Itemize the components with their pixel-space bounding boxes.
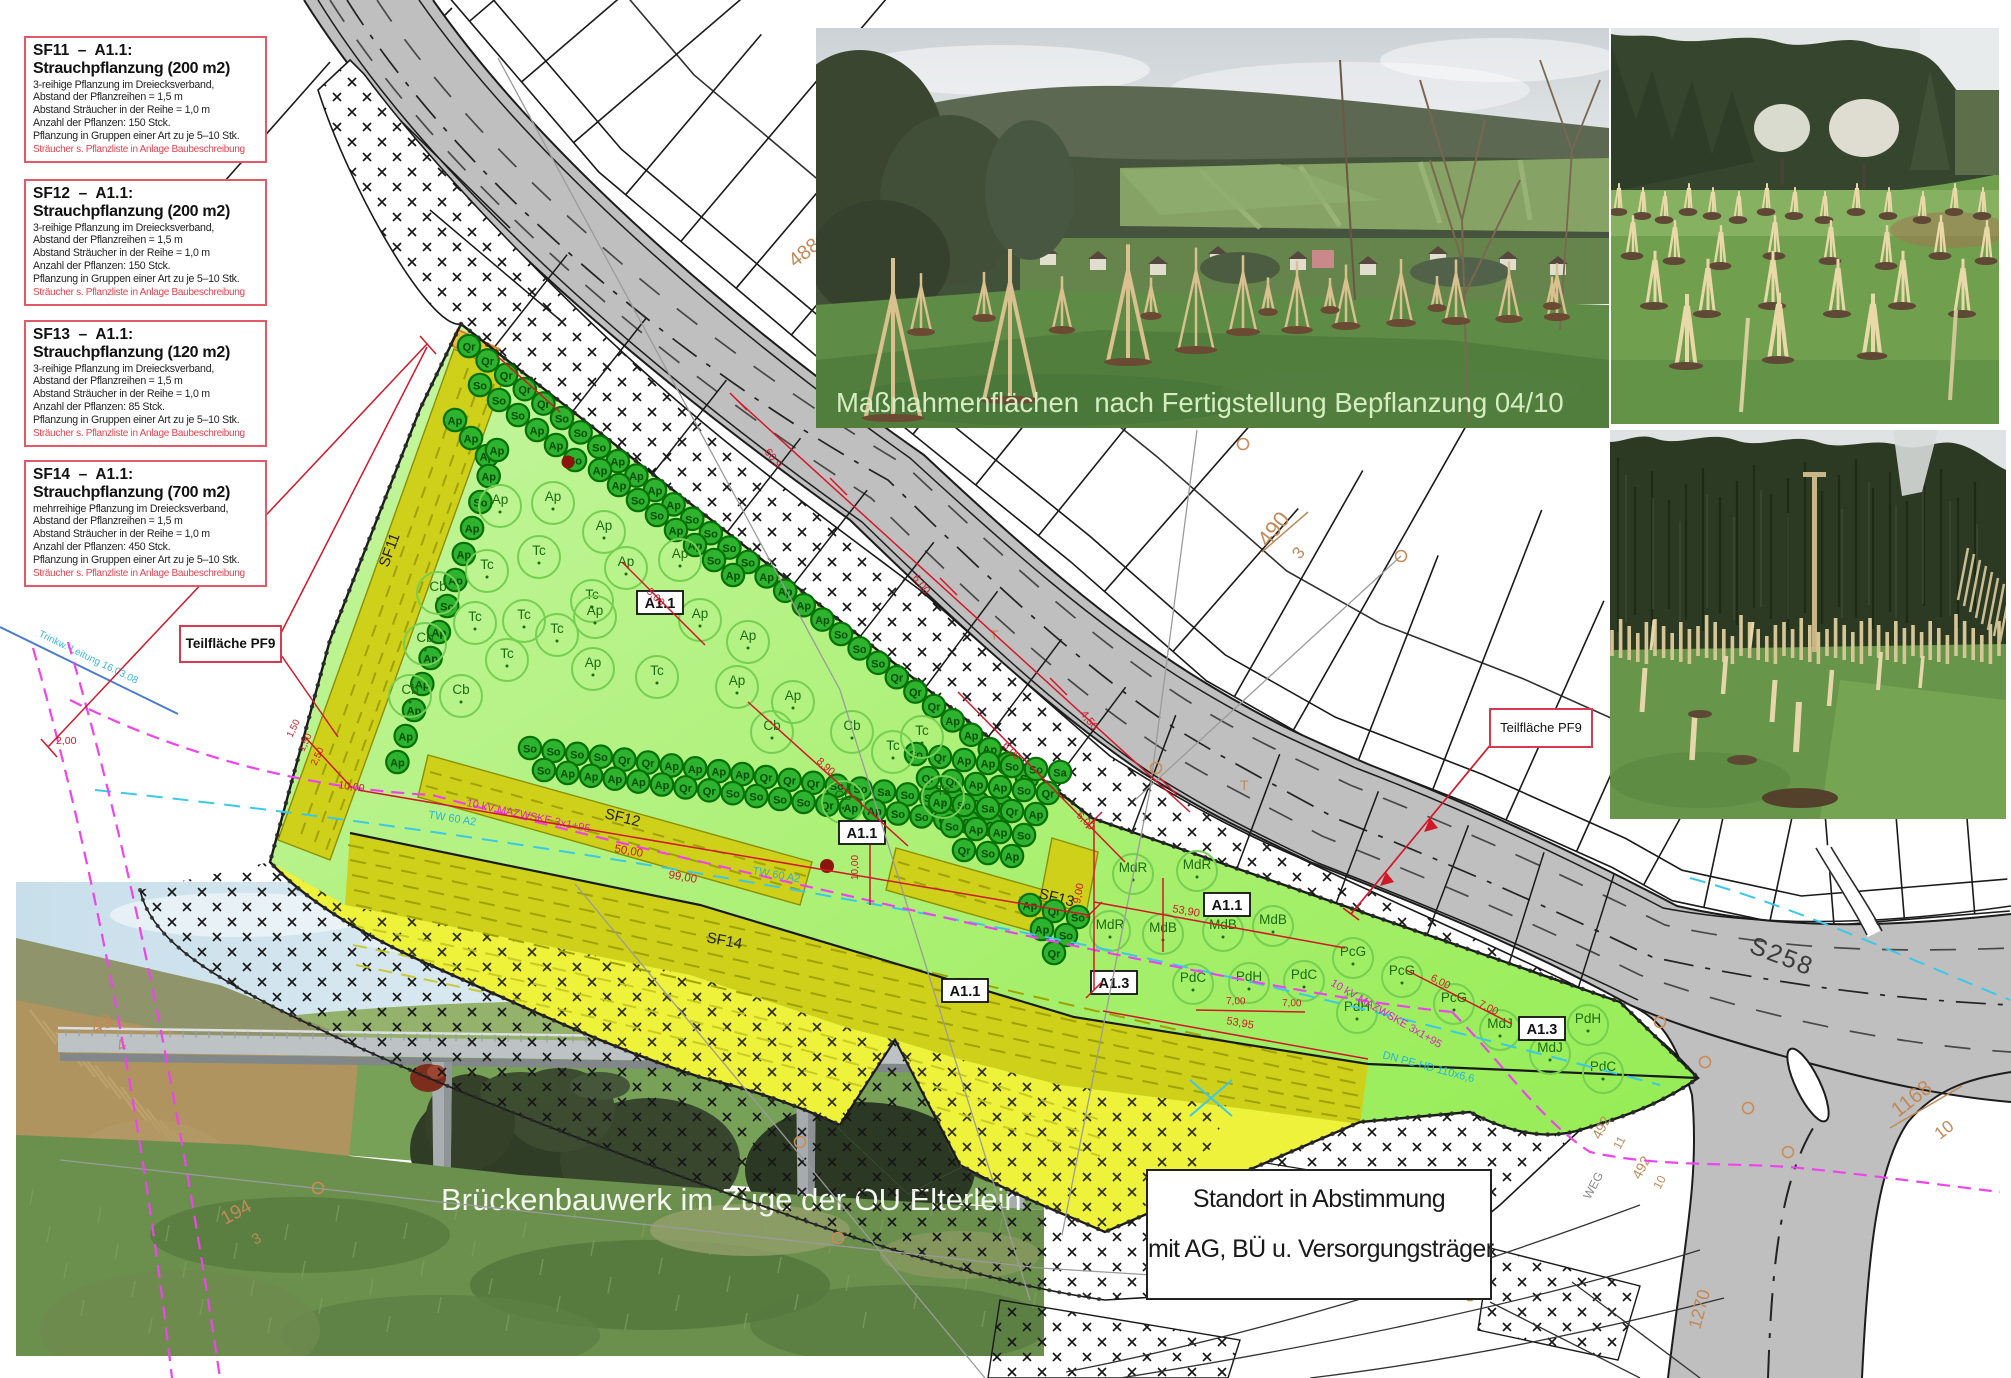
svg-text:So: So: [749, 792, 763, 804]
svg-text:Ap: Ap: [593, 466, 608, 478]
svg-text:So: So: [871, 658, 885, 670]
svg-text:So: So: [574, 428, 588, 440]
svg-text:So: So: [945, 822, 959, 834]
svg-text:PcG: PcG: [1389, 963, 1415, 978]
svg-text:Ap: Ap: [666, 500, 681, 512]
svg-text:Ap: Ap: [729, 673, 746, 688]
svg-text:Ap: Ap: [465, 524, 480, 536]
svg-text:Ap: Ap: [648, 486, 663, 498]
svg-text:Qr: Qr: [463, 342, 477, 354]
svg-text:Ap: Ap: [796, 601, 811, 613]
svg-text:MdB: MdB: [1259, 912, 1287, 927]
svg-text:Ap: Ap: [740, 628, 757, 643]
svg-text:So: So: [901, 790, 915, 802]
svg-text:So: So: [537, 766, 551, 778]
svg-text:Sa: Sa: [1053, 768, 1067, 780]
svg-text:So: So: [726, 789, 740, 801]
svg-text:PcG: PcG: [1441, 990, 1467, 1005]
svg-text:Sa: Sa: [981, 804, 995, 816]
svg-text:So: So: [1059, 931, 1073, 943]
svg-text:Ap: Ap: [585, 655, 602, 670]
svg-text:So: So: [1005, 762, 1019, 774]
svg-text:So: So: [685, 514, 699, 526]
svg-text:Tc: Tc: [550, 621, 564, 636]
svg-text:Ap: Ap: [933, 798, 948, 810]
svg-text:PdH: PdH: [1575, 1011, 1601, 1026]
svg-text:Qr: Qr: [890, 673, 904, 685]
svg-text:So: So: [592, 442, 606, 454]
svg-text:Ap: Ap: [549, 441, 564, 453]
svg-text:So: So: [891, 809, 905, 821]
svg-text:A1.3: A1.3: [1527, 1022, 1558, 1038]
svg-text:Tc: Tc: [886, 738, 900, 753]
svg-text:Tc: Tc: [480, 557, 494, 572]
svg-text:Cb: Cb: [843, 718, 860, 733]
svg-text:7,00: 7,00: [1282, 998, 1302, 1009]
svg-text:T: T: [1240, 777, 1249, 793]
svg-text:Ap: Ap: [735, 770, 750, 782]
svg-text:Qr: Qr: [909, 687, 923, 699]
svg-text:Qr: Qr: [807, 778, 821, 790]
svg-text:7,00: 7,00: [1226, 996, 1246, 1007]
svg-text:Ap: Ap: [964, 730, 979, 742]
svg-text:Ap: Ap: [596, 518, 613, 533]
svg-text:Qr: Qr: [703, 786, 717, 798]
svg-text:Ap: Ap: [969, 780, 984, 792]
svg-text:So: So: [594, 752, 608, 764]
svg-text:So: So: [650, 511, 664, 523]
svg-text:10,00: 10,00: [850, 855, 861, 880]
svg-text:Ap: Ap: [530, 426, 545, 438]
svg-text:Ap: Ap: [492, 492, 509, 507]
svg-text:Qr: Qr: [934, 753, 948, 765]
svg-text:So: So: [523, 744, 537, 756]
svg-text:Ap: Ap: [490, 446, 505, 458]
svg-text:Qr: Qr: [1006, 807, 1020, 819]
svg-text:Tc: Tc: [468, 609, 482, 624]
svg-text:Cb: Cb: [763, 718, 780, 733]
svg-text:Tc: Tc: [500, 646, 514, 661]
svg-text:Tc: Tc: [517, 607, 531, 622]
svg-text:So: So: [915, 812, 929, 824]
svg-text:Ap: Ap: [688, 764, 703, 776]
svg-text:So: So: [707, 556, 721, 568]
svg-text:Ap: Ap: [957, 756, 972, 768]
svg-text:So: So: [1017, 786, 1031, 798]
svg-text:Ap: Ap: [785, 688, 802, 703]
svg-text:Ap: Ap: [759, 572, 774, 584]
svg-text:So: So: [1017, 831, 1031, 843]
svg-text:PcG: PcG: [1340, 944, 1366, 959]
svg-text:So: So: [473, 381, 487, 393]
svg-text:Ap: Ap: [607, 774, 622, 786]
svg-text:Qr: Qr: [783, 775, 797, 787]
svg-text:Qr: Qr: [679, 783, 693, 795]
svg-text:2,00: 2,00: [56, 735, 77, 747]
svg-text:Ap: Ap: [390, 758, 405, 770]
svg-text:MdR: MdR: [1096, 917, 1125, 932]
svg-text:So: So: [631, 496, 645, 508]
svg-text:Cb: Cb: [401, 682, 418, 697]
svg-text:Qr: Qr: [618, 755, 632, 767]
svg-text:Ap: Ap: [981, 759, 996, 771]
svg-text:Ap: Ap: [993, 828, 1008, 840]
svg-text:MdR: MdR: [1183, 857, 1212, 872]
svg-text:A1.1: A1.1: [1212, 898, 1243, 914]
svg-text:So: So: [511, 411, 525, 423]
svg-text:Qr: Qr: [760, 773, 774, 785]
svg-text:Maßnahmenflächen nach Fertigs: Maßnahmenflächen nach Fertigstellung Bep…: [836, 387, 1564, 418]
svg-text:Ap: Ap: [1035, 925, 1050, 937]
svg-text:So: So: [797, 797, 811, 809]
svg-text:Ap: Ap: [560, 768, 575, 780]
svg-text:Ap: Ap: [672, 546, 689, 561]
svg-text:Qr: Qr: [1048, 949, 1062, 961]
svg-text:Tc: Tc: [585, 587, 599, 602]
svg-text:PdC: PdC: [1291, 967, 1318, 982]
svg-text:Ap: Ap: [610, 457, 625, 469]
svg-text:Ap: Ap: [815, 615, 830, 627]
svg-text:So: So: [704, 529, 718, 541]
svg-text:Cb: Cb: [416, 630, 433, 645]
svg-text:Ap: Ap: [664, 761, 679, 773]
svg-text:Cb: Cb: [452, 682, 469, 697]
svg-text:Ap: Ap: [969, 825, 984, 837]
svg-text:Ap: Ap: [481, 472, 496, 484]
svg-text:So: So: [492, 396, 506, 408]
svg-text:So: So: [570, 749, 584, 761]
svg-text:So: So: [853, 644, 867, 656]
svg-text:Ap: Ap: [584, 771, 599, 783]
svg-text:Ap: Ap: [612, 481, 627, 493]
svg-text:Qr: Qr: [958, 846, 972, 858]
svg-text:Cb: Cb: [429, 579, 446, 594]
svg-text:So: So: [741, 558, 755, 570]
svg-text:Ap: Ap: [711, 767, 726, 779]
svg-text:Tc: Tc: [532, 543, 546, 558]
svg-text:Ap: Ap: [692, 606, 709, 621]
svg-text:Ap: Ap: [726, 571, 741, 583]
svg-text:So: So: [773, 795, 787, 807]
svg-text:Tc: Tc: [936, 783, 950, 798]
svg-text:Tc: Tc: [650, 663, 664, 678]
svg-text:Ap: Ap: [545, 489, 562, 504]
svg-text:So: So: [834, 630, 848, 642]
svg-text:Cb: Cb: [834, 788, 851, 803]
svg-text:Ap: Ap: [993, 783, 1008, 795]
svg-text:Ap: Ap: [1005, 852, 1020, 864]
svg-text:Qr: Qr: [1042, 789, 1056, 801]
svg-text:So: So: [981, 849, 995, 861]
svg-text:Sa: Sa: [877, 787, 891, 799]
svg-text:So: So: [555, 414, 569, 426]
svg-text:Qr: Qr: [928, 702, 942, 714]
svg-text:Ap: Ap: [669, 526, 684, 538]
svg-text:Qr: Qr: [500, 370, 514, 382]
svg-text:So: So: [547, 746, 561, 758]
svg-text:Ap: Ap: [1029, 810, 1044, 822]
svg-text:Qr: Qr: [518, 385, 532, 397]
svg-text:Ap: Ap: [587, 603, 604, 618]
svg-text:Ap: Ap: [464, 434, 479, 446]
svg-text:So: So: [722, 543, 736, 555]
svg-text:A1.1: A1.1: [950, 984, 981, 1000]
svg-text:Ap: Ap: [655, 780, 670, 792]
svg-text:A1.1: A1.1: [847, 826, 878, 842]
svg-text:Qr: Qr: [642, 758, 656, 770]
svg-text:A1.3: A1.3: [1099, 976, 1130, 992]
svg-text:Ap: Ap: [631, 777, 646, 789]
svg-text:Qr: Qr: [481, 356, 495, 368]
svg-text:Tc: Tc: [915, 723, 929, 738]
svg-text:Ap: Ap: [398, 732, 413, 744]
svg-text:Ap: Ap: [448, 416, 463, 428]
svg-text:Ap: Ap: [843, 803, 858, 815]
svg-text:Ap: Ap: [945, 716, 960, 728]
svg-text:Ap: Ap: [629, 471, 644, 483]
svg-text:MdJ: MdJ: [1537, 1040, 1563, 1055]
